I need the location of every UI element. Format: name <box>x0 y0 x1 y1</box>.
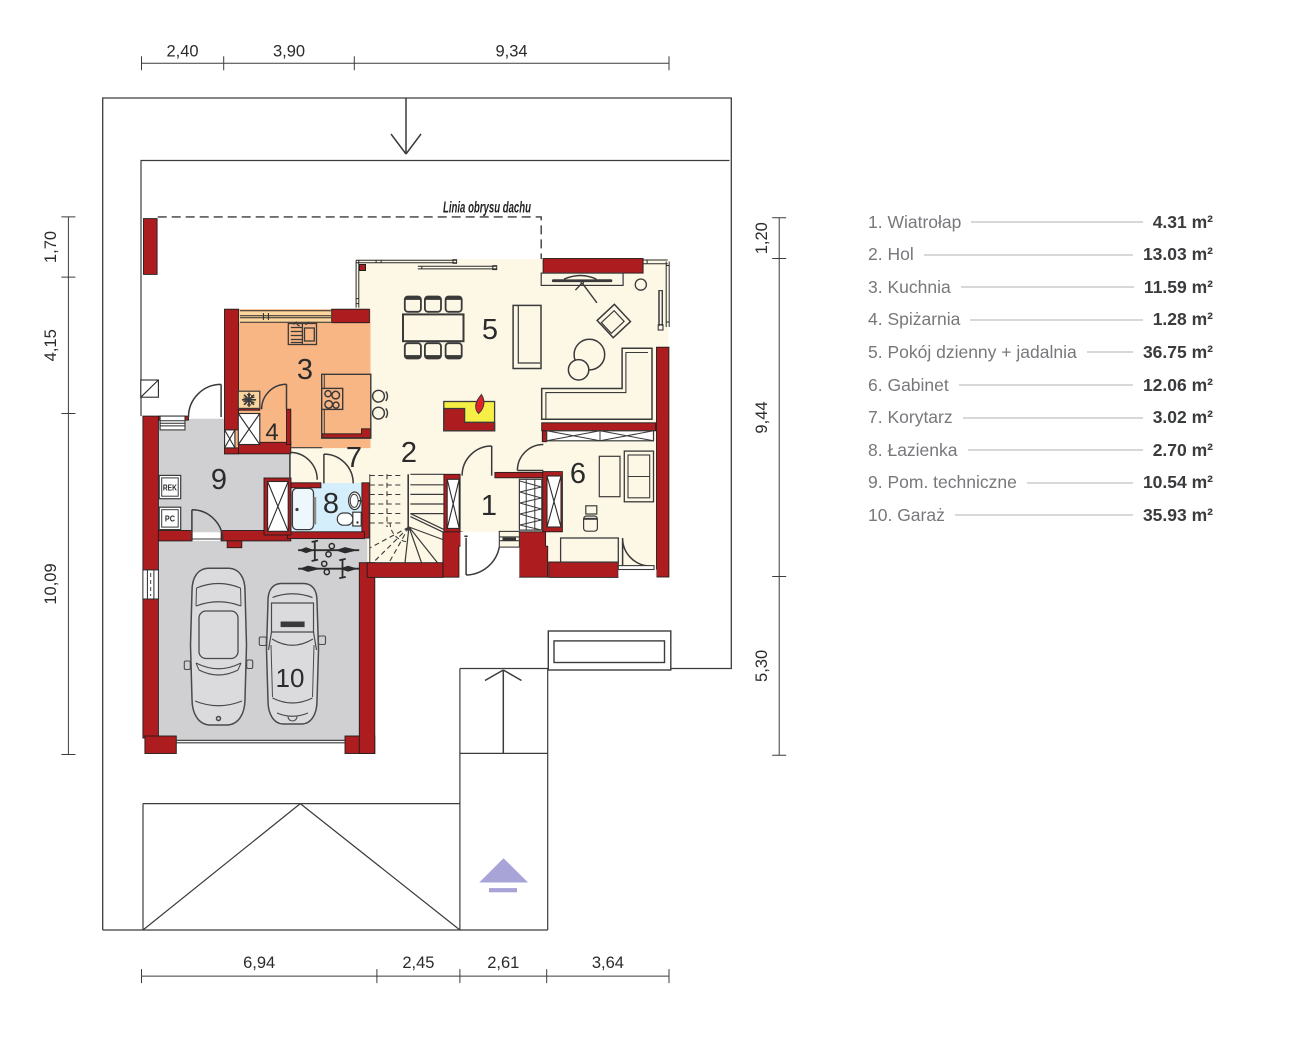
svg-text:4,15: 4,15 <box>42 329 60 361</box>
svg-text:5: 5 <box>482 314 498 346</box>
svg-text:PC: PC <box>165 515 175 524</box>
svg-text:1,70: 1,70 <box>42 231 60 263</box>
svg-text:2,61: 2,61 <box>487 954 519 972</box>
svg-text:6,94: 6,94 <box>243 954 275 972</box>
svg-text:2,40: 2,40 <box>166 43 198 61</box>
svg-text:1: 1 <box>481 490 497 522</box>
svg-text:4: 4 <box>265 419 278 446</box>
svg-text:3: 3 <box>297 354 313 386</box>
svg-text:3,64: 3,64 <box>592 954 624 972</box>
svg-text:3,90: 3,90 <box>273 43 305 61</box>
svg-text:7: 7 <box>346 442 362 474</box>
svg-text:9,44: 9,44 <box>753 401 771 433</box>
svg-text:2,45: 2,45 <box>402 954 434 972</box>
svg-text:6: 6 <box>570 458 586 490</box>
svg-text:2: 2 <box>401 437 417 469</box>
svg-text:9: 9 <box>211 464 227 496</box>
svg-text:5,30: 5,30 <box>753 650 771 682</box>
svg-text:Linia obrysu dachu: Linia obrysu dachu <box>443 200 531 217</box>
svg-text:9,34: 9,34 <box>495 43 527 61</box>
svg-text:10: 10 <box>276 663 305 693</box>
svg-text:1,20: 1,20 <box>753 222 771 254</box>
svg-text:8: 8 <box>323 488 339 520</box>
svg-text:REK: REK <box>163 484 177 493</box>
svg-text:10,09: 10,09 <box>42 563 60 604</box>
